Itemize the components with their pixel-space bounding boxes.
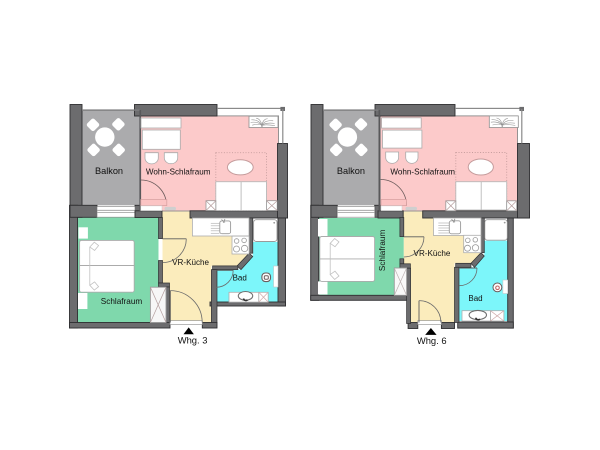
svg-text:Bad: Bad (468, 294, 482, 303)
svg-text:Balkon: Balkon (95, 166, 123, 176)
svg-text:Whg. 3: Whg. 3 (178, 335, 208, 346)
svg-text:Wohn-Schlafraum: Wohn-Schlafraum (390, 167, 455, 176)
svg-text:VR-Küche: VR-Küche (414, 249, 451, 258)
svg-text:Schlafraum: Schlafraum (378, 230, 387, 272)
svg-text:Balkon: Balkon (337, 166, 365, 176)
svg-text:Whg. 6: Whg. 6 (417, 335, 447, 346)
svg-text:Bad: Bad (233, 274, 247, 283)
svg-text:VR-Küche: VR-Küche (172, 258, 209, 267)
svg-text:Schlafraum: Schlafraum (101, 297, 143, 306)
svg-text:Wohn-Schlafraum: Wohn-Schlafraum (146, 167, 211, 176)
